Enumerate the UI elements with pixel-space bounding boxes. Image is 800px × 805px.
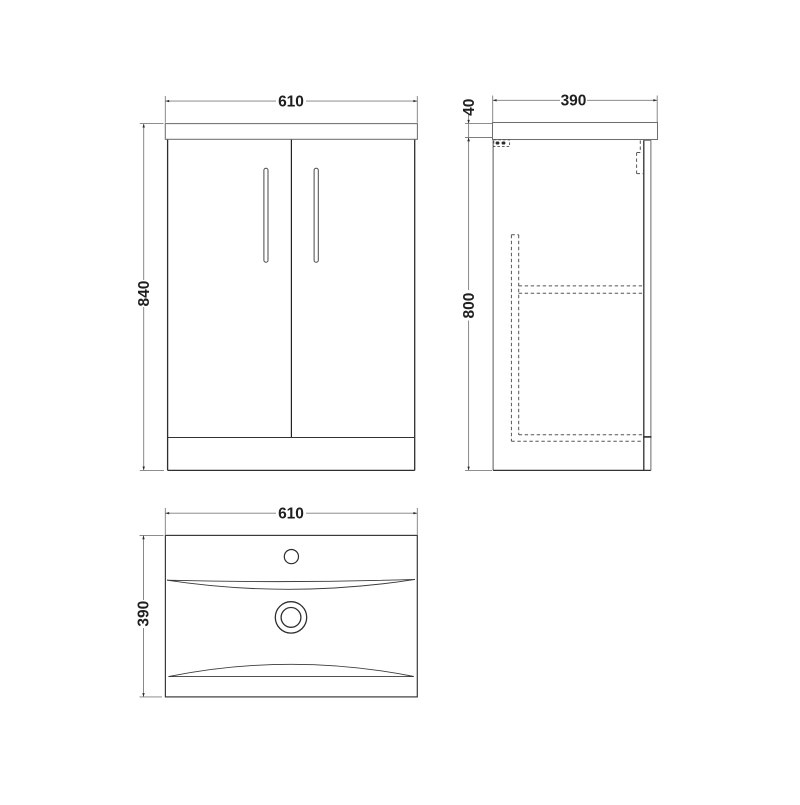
- svg-text:840: 840: [136, 281, 153, 307]
- svg-text:610: 610: [278, 93, 304, 110]
- svg-text:390: 390: [561, 93, 587, 110]
- svg-text:40: 40: [461, 99, 478, 116]
- svg-text:610: 610: [278, 505, 304, 522]
- svg-text:390: 390: [136, 601, 153, 627]
- svg-text:800: 800: [461, 293, 478, 319]
